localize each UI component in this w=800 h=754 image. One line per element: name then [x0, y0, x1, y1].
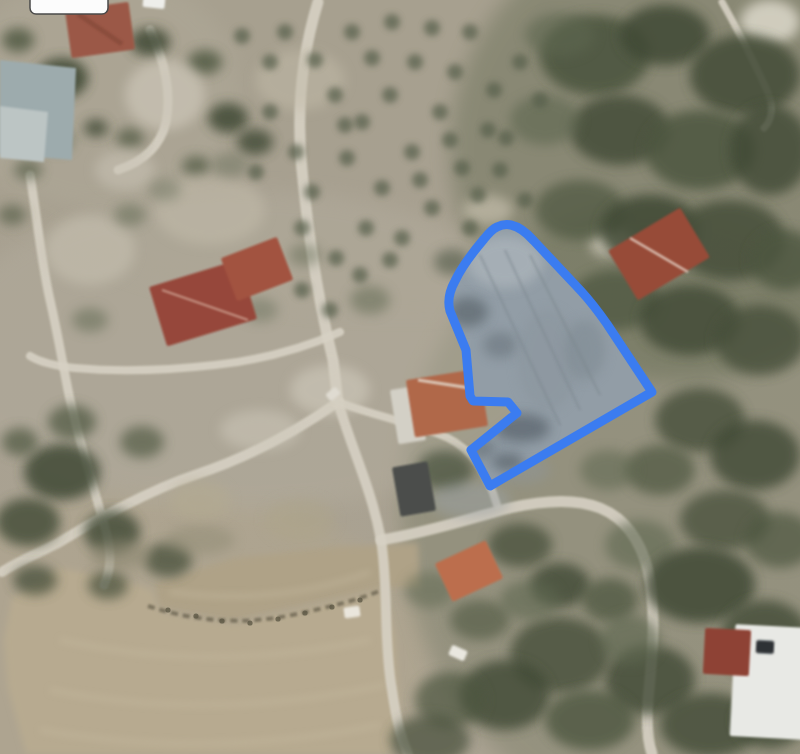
olive-tree [407, 54, 423, 70]
olive-tree [462, 220, 478, 236]
olive-tree [447, 64, 463, 80]
olive-tree [337, 117, 353, 133]
vegetation-patch [2, 28, 34, 52]
building-roof [703, 628, 751, 676]
vegetation-patch [580, 450, 636, 490]
vegetation-patch [500, 580, 560, 620]
building-grayblue-roof-annex [0, 106, 48, 162]
vegetation-patch [265, 498, 335, 542]
vegetation-patch [114, 204, 146, 226]
olive-tree [462, 24, 478, 40]
olive-tree [498, 130, 514, 146]
map-label-box[interactable] [30, 0, 108, 14]
olive-tree [442, 132, 458, 148]
vegetation-patch [237, 129, 273, 155]
vehicle [343, 605, 360, 618]
vegetation-patch [289, 244, 321, 266]
vegetation-patch [290, 365, 370, 415]
vegetation-patch [600, 615, 660, 665]
olive-tree [480, 122, 496, 138]
vegetation-patch [488, 523, 552, 567]
vegetation-patch [710, 420, 800, 490]
vegetation-patch [165, 525, 235, 555]
olive-tree [404, 144, 420, 160]
vegetation-patch [208, 103, 248, 133]
boundary-rock [329, 604, 334, 609]
olive-tree [294, 282, 310, 298]
olive-tree [277, 24, 293, 40]
vegetation-patch [170, 480, 230, 520]
olive-tree [352, 267, 368, 283]
olive-tree [382, 252, 398, 268]
vegetation-patch [182, 156, 210, 176]
olive-tree [486, 82, 502, 98]
vegetation-patch [220, 410, 300, 450]
olive-tree [432, 104, 448, 120]
boundary-rock [219, 618, 224, 623]
surface-smudge [565, 320, 605, 380]
vegetation-patch [88, 571, 128, 599]
olive-tree [288, 144, 304, 160]
vegetation-patch [72, 308, 108, 332]
olive-tree [512, 54, 528, 70]
building-roof [756, 640, 775, 654]
olive-tree [382, 87, 398, 103]
vegetation-patch [24, 444, 100, 500]
vegetation-patch [2, 428, 38, 456]
olive-tree [384, 14, 400, 30]
boundary-rock [357, 597, 362, 602]
olive-tree [354, 114, 370, 130]
olive-tree [364, 50, 380, 66]
olive-tree [307, 52, 323, 68]
olive-tree [234, 28, 250, 44]
olive-tree [327, 87, 343, 103]
olive-tree [424, 200, 440, 216]
olive-tree [394, 230, 410, 246]
vegetation-patch [149, 179, 181, 201]
vegetation-patch [690, 35, 800, 115]
olive-tree [322, 302, 338, 318]
olive-tree [492, 162, 508, 178]
vegetation-patch [14, 160, 42, 180]
vegetation-patch [84, 119, 108, 137]
vegetation-patch [525, 13, 595, 57]
vegetation-patch [13, 565, 57, 595]
vegetation-patch [450, 600, 510, 640]
olive-tree [517, 192, 533, 208]
vegetation-patch [430, 482, 510, 518]
olive-tree [294, 220, 310, 236]
vegetation-patch [120, 426, 164, 458]
olive-tree [374, 180, 390, 196]
olive-tree [262, 104, 278, 120]
olive-tree [470, 187, 486, 203]
vegetation-patch [620, 5, 710, 65]
vegetation-patch [212, 153, 248, 177]
vegetation-patch [350, 286, 390, 314]
vegetation-patch [545, 690, 635, 750]
boundary-rock [247, 620, 252, 625]
vegetation-patch [125, 60, 205, 130]
boundary-rock [165, 607, 170, 612]
olive-tree [532, 92, 548, 108]
olive-tree [328, 250, 344, 266]
vegetation-patch [95, 150, 155, 190]
olive-tree [358, 220, 374, 236]
olive-tree [412, 172, 428, 188]
olive-tree [344, 24, 360, 40]
vegetation-patch [116, 128, 144, 148]
satellite-map-view [0, 0, 800, 754]
vegetation-patch [90, 540, 150, 570]
olive-tree [248, 164, 264, 180]
boundary-rock [275, 616, 280, 621]
olive-tree [454, 160, 470, 176]
surface-smudge [483, 332, 517, 358]
olive-tree [339, 150, 355, 166]
olive-tree [424, 20, 440, 36]
boundary-rock [302, 610, 307, 615]
boundary-rock [193, 613, 198, 618]
vegetation-patch [130, 28, 170, 56]
vegetation-patch [45, 215, 135, 285]
satellite-image [0, 0, 800, 754]
vegetation-patch [48, 405, 96, 439]
olive-tree [262, 54, 278, 70]
olive-tree [304, 184, 320, 200]
